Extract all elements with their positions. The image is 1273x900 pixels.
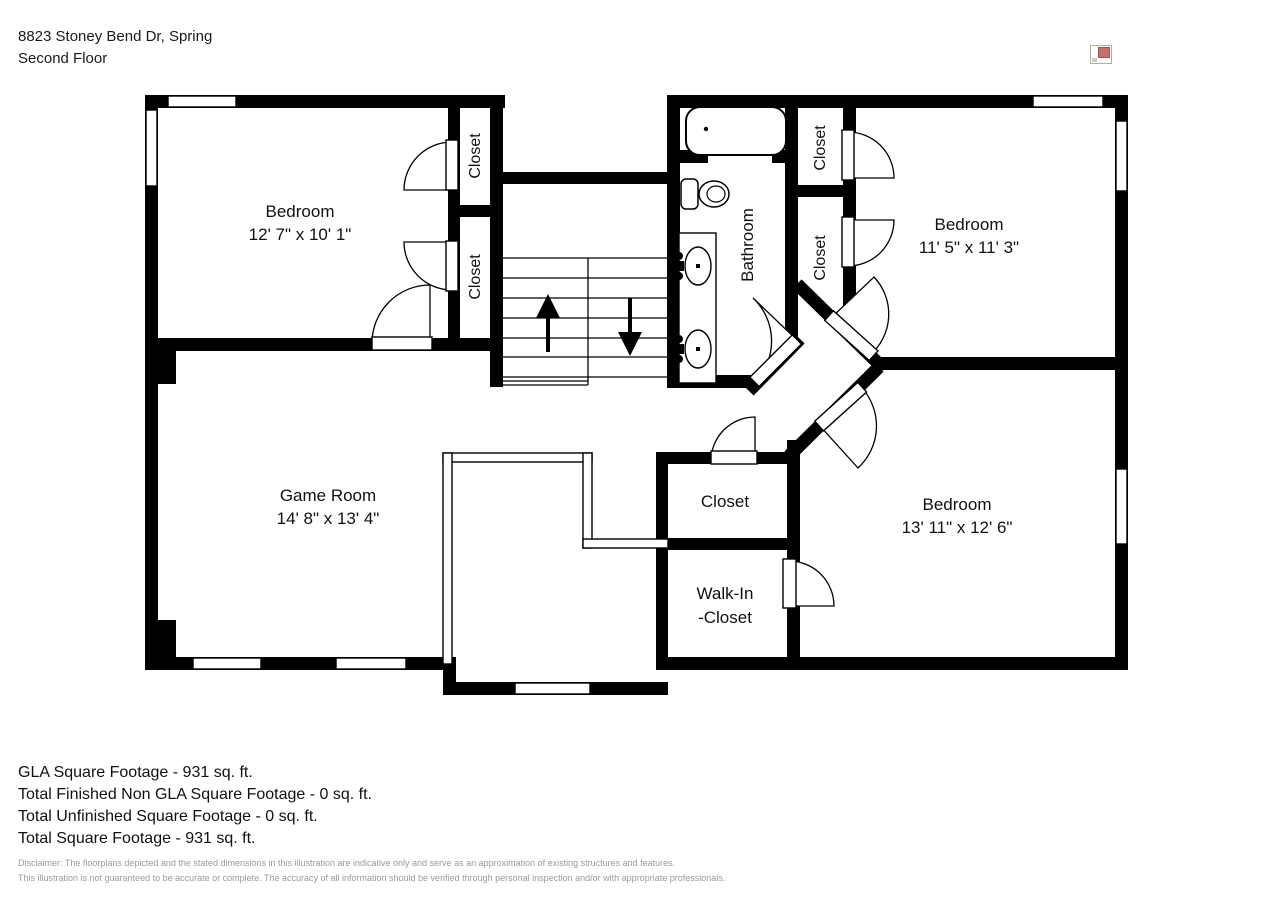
room-label-game-room: Game Room — [280, 486, 376, 506]
sink-faucet-icon — [675, 252, 683, 260]
unfinished-square-footage: Total Unfinished Square Footage - 0 sq. … — [18, 806, 372, 828]
disclaimer-line-1: Disclaimer: The floorplans depicted and … — [18, 856, 725, 871]
window-left — [146, 110, 157, 186]
door-arc-bedroom-tl — [372, 285, 430, 343]
window-right-upper — [1116, 121, 1127, 191]
room-label-bedroom-tr: Bedroom — [935, 215, 1004, 235]
room-dims-bedroom-tl: 12' 7" x 10' 1" — [249, 225, 352, 245]
stairs-down-arrow-icon — [618, 332, 642, 356]
room-dims-game-room: 14' 8" x 13' 4" — [277, 509, 380, 529]
room-label-closet-tl-top: Closet — [467, 133, 485, 178]
door-arc-closet-tr-top — [848, 132, 894, 178]
disclaimer: Disclaimer: The floorplans depicted and … — [18, 856, 725, 886]
non-gla-square-footage: Total Finished Non GLA Square Footage - … — [18, 784, 372, 806]
sink-faucet-icon — [675, 355, 683, 363]
window-right-lower — [1116, 469, 1127, 544]
door-leaf-walkin — [783, 559, 796, 608]
railing-right — [583, 453, 592, 548]
room-label-bathroom: Bathroom — [738, 208, 758, 282]
stairs — [503, 258, 667, 385]
room-dims-bedroom-br: 13' 11" x 12' 6" — [902, 518, 1013, 538]
toilet-tank-icon — [681, 179, 698, 209]
door-leaf-closet-tr-bottom — [842, 217, 854, 267]
window-bottom-1 — [193, 658, 261, 669]
room-label-closet-tr-bottom: Closet — [812, 235, 830, 280]
door-arc-closet-tl-bottom — [404, 242, 452, 290]
window-top-left — [168, 96, 236, 107]
sink-faucet-icon — [676, 261, 684, 271]
window-nook — [515, 683, 590, 694]
room-label-bedroom-tl: Bedroom — [266, 202, 335, 222]
room-label-walkin-line2: -Closet — [698, 608, 752, 628]
room-label-closet-tr-top: Closet — [812, 125, 830, 170]
door-leaf-closet-tl-top — [446, 140, 458, 190]
window-top-right — [1033, 96, 1103, 107]
room-label-closet-tl-bottom: Closet — [467, 254, 485, 299]
disclaimer-line-2: This illustration is not guaranteed to b… — [18, 871, 725, 886]
bathtub-icon — [686, 107, 786, 155]
gla-square-footage: GLA Square Footage - 931 sq. ft. — [18, 762, 372, 784]
railing-left — [443, 453, 452, 664]
room-label-bedroom-br: Bedroom — [923, 495, 992, 515]
door-leaf-bedroom-tl — [372, 337, 432, 350]
door-arc-closet-tl-top — [404, 142, 452, 190]
sink-faucet-icon — [675, 335, 683, 343]
room-label-closet-mid: Closet — [701, 492, 749, 512]
railing-top — [443, 453, 592, 462]
square-footage-summary: GLA Square Footage - 931 sq. ft. Total F… — [18, 762, 372, 850]
window-bottom-2 — [336, 658, 406, 669]
door-leaf-closet-tr-top — [842, 130, 854, 180]
sink-faucet-icon — [675, 272, 683, 280]
room-dims-bedroom-tr: 11' 5" x 11' 3" — [919, 238, 1019, 258]
bathtub-faucet-icon — [704, 127, 708, 131]
floorplan-page: 8823 Stoney Bend Dr, Spring Second Floor — [0, 0, 1273, 900]
sink-drain-icon — [696, 347, 700, 351]
sink-drain-icon — [696, 264, 700, 268]
sink-faucet-icon — [676, 344, 684, 354]
room-label-walkin-line1: Walk-In — [697, 584, 754, 604]
door-arc-closet-tr-bottom — [848, 220, 894, 266]
door-leaf-closet-mid — [711, 451, 757, 464]
total-square-footage: Total Square Footage - 931 sq. ft. — [18, 828, 372, 850]
bathroom-fixtures — [675, 107, 786, 383]
railing-south — [583, 539, 668, 548]
door-leaf-closet-tl-bottom — [446, 241, 458, 291]
toilet-bowl-inner-icon — [707, 186, 725, 202]
